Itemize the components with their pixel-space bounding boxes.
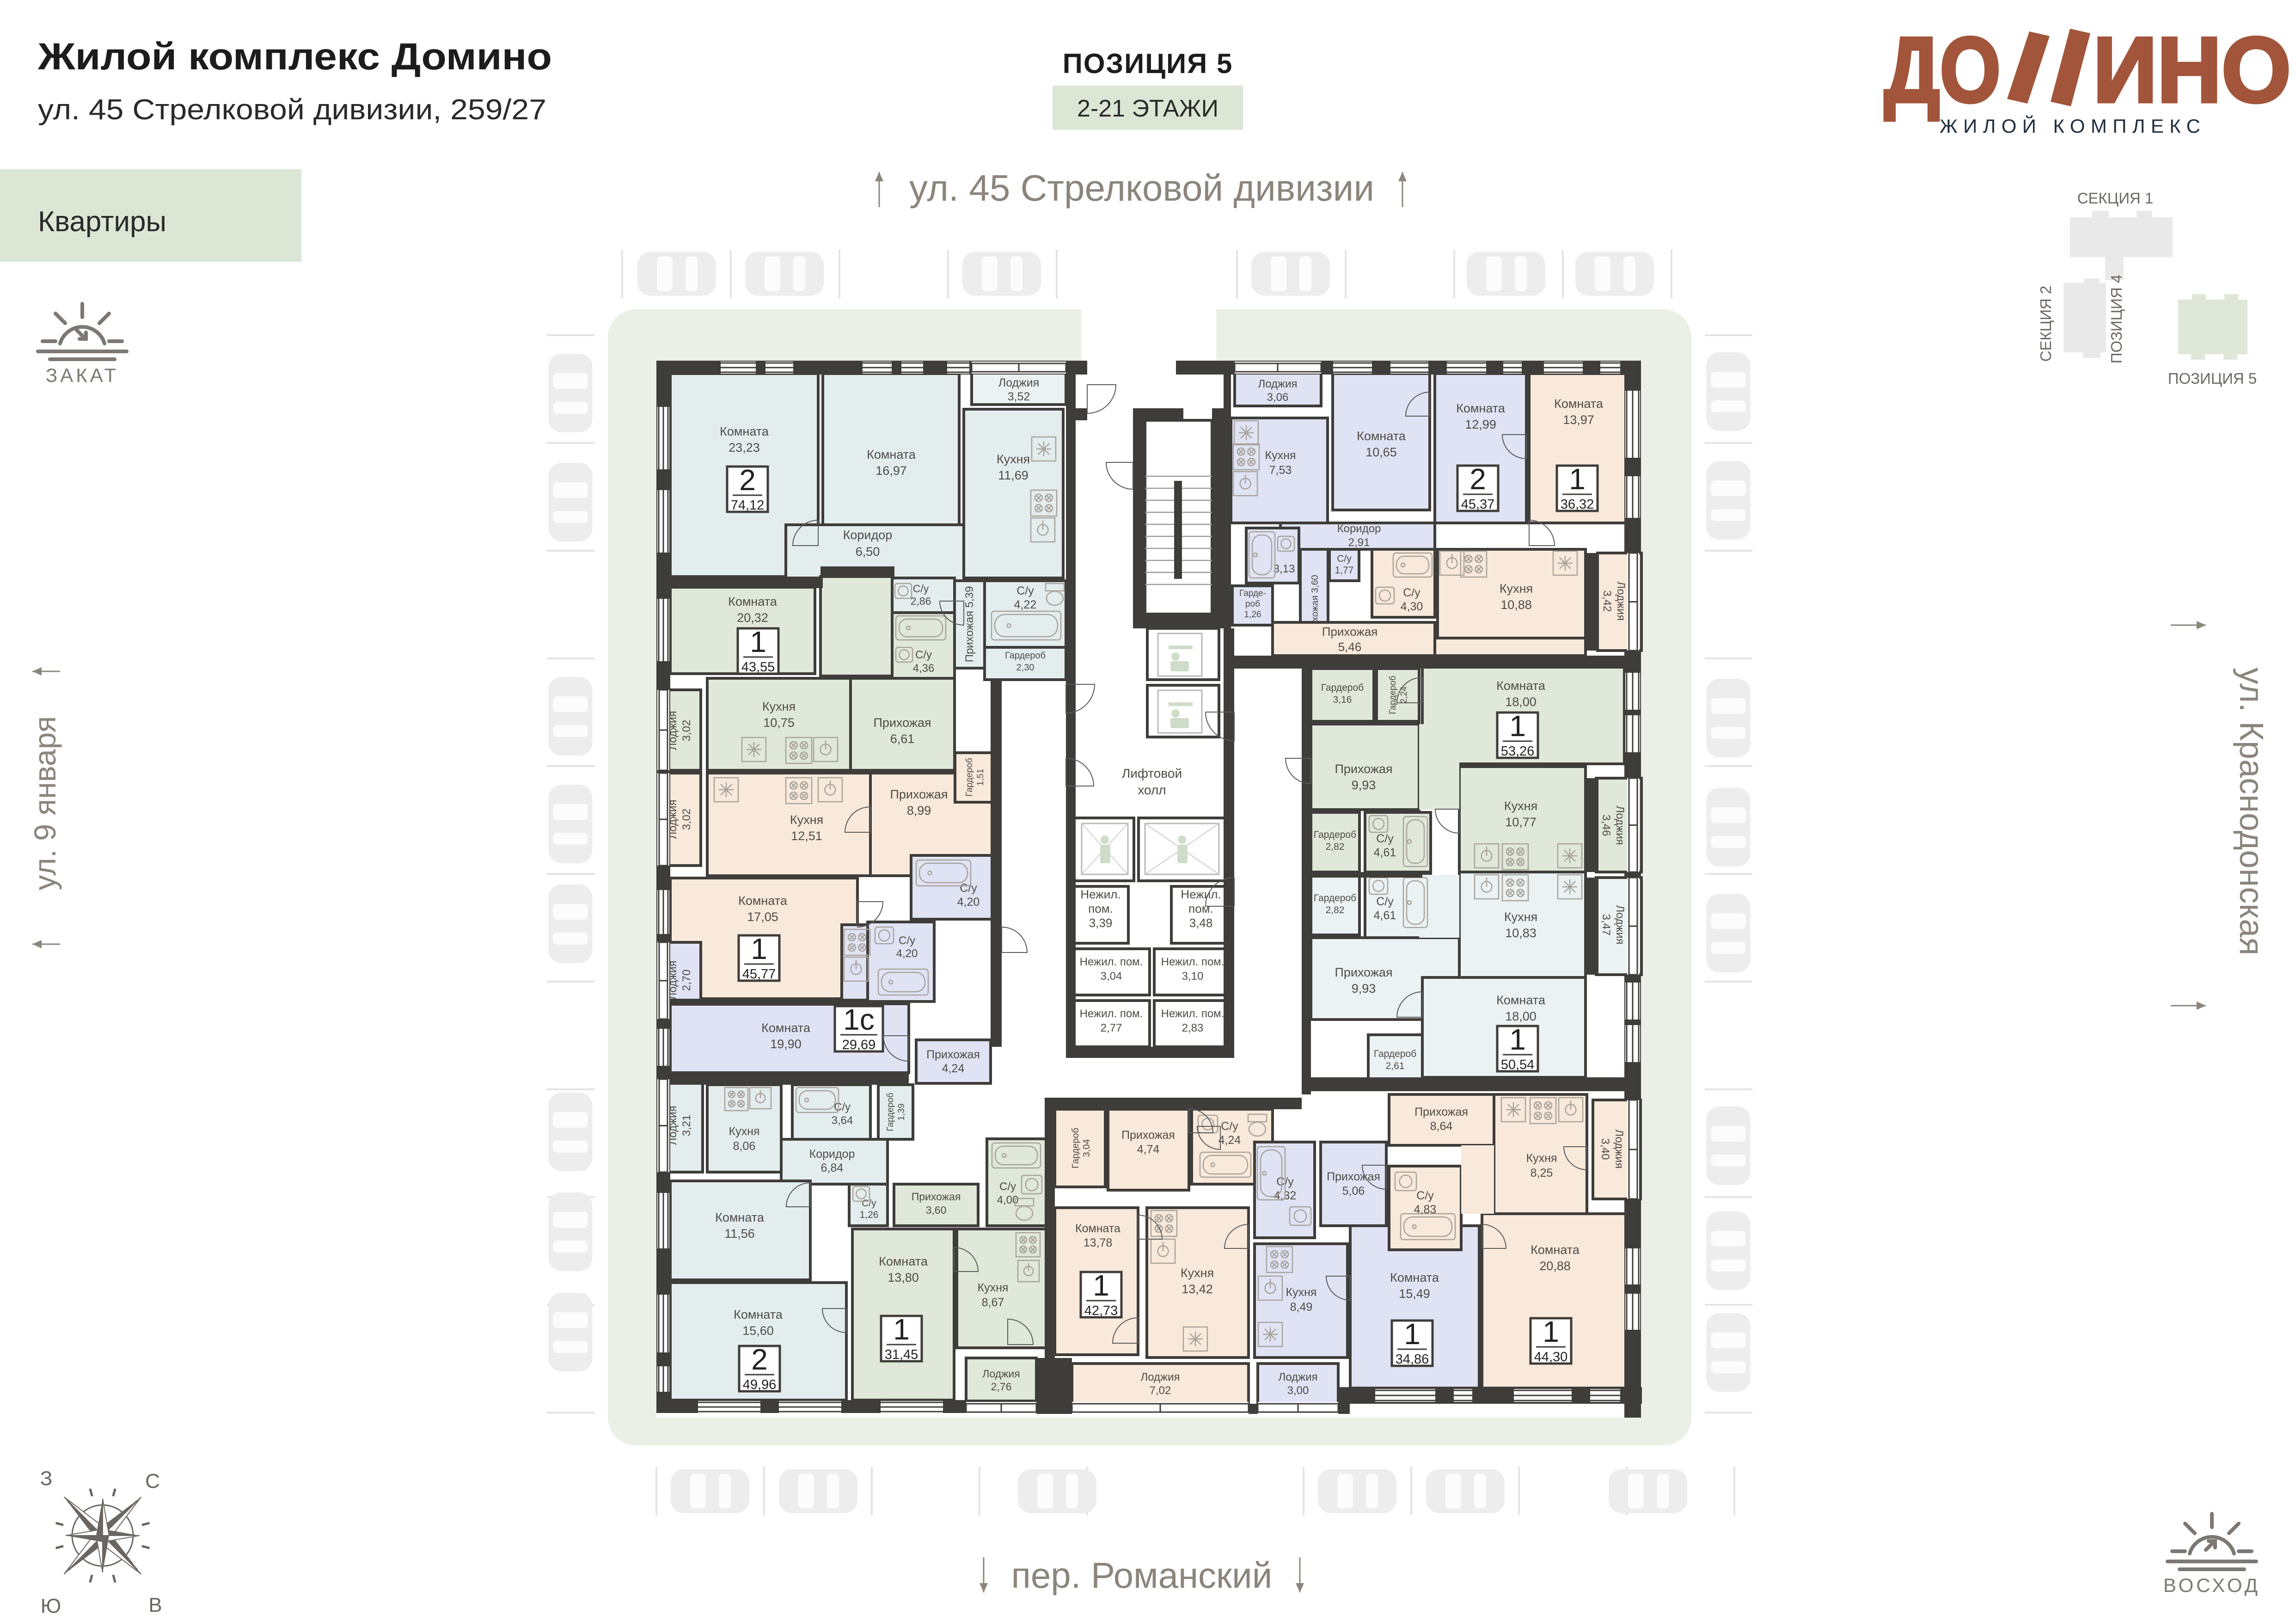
svg-text:1с: 1с bbox=[843, 1003, 875, 1036]
svg-text:В: В bbox=[148, 1594, 162, 1616]
svg-text:ул. Краснодонская: ул. Краснодонская bbox=[2233, 668, 2270, 956]
svg-text:ПОЗИЦИЯ 5: ПОЗИЦИЯ 5 bbox=[1063, 48, 1233, 79]
svg-text:З: З bbox=[40, 1467, 53, 1490]
svg-text:1: 1 bbox=[1543, 1315, 1559, 1348]
svg-text:49,96: 49,96 bbox=[743, 1377, 777, 1392]
svg-text:34,86: 34,86 bbox=[1396, 1352, 1429, 1367]
svg-text:ЖИЛОЙ КОМПЛЕКС: ЖИЛОЙ КОМПЛЕКС bbox=[1940, 115, 2204, 137]
svg-text:74,12: 74,12 bbox=[731, 498, 765, 513]
svg-text:Квартиры: Квартиры bbox=[38, 206, 166, 238]
svg-text:Прихожая 5,39: Прихожая 5,39 bbox=[963, 586, 976, 663]
svg-text:50,54: 50,54 bbox=[1501, 1057, 1535, 1072]
svg-text:СЕКЦИЯ 2: СЕКЦИЯ 2 bbox=[2037, 286, 2054, 362]
svg-text:ул. 45 Стрелковой дивизии: ул. 45 Стрелковой дивизии bbox=[909, 167, 1374, 209]
svg-text:ПОЗИЦИЯ 5: ПОЗИЦИЯ 5 bbox=[2168, 370, 2257, 387]
svg-text:2-21 ЭТАЖИ: 2-21 ЭТАЖИ bbox=[1077, 95, 1218, 122]
svg-text:2: 2 bbox=[1469, 462, 1486, 496]
svg-text:29,69: 29,69 bbox=[842, 1038, 876, 1052]
svg-text:1: 1 bbox=[1569, 462, 1586, 496]
svg-text:44,30: 44,30 bbox=[1534, 1350, 1568, 1364]
svg-text:ЗАКАТ: ЗАКАТ bbox=[46, 364, 119, 386]
svg-text:ВОСХОД: ВОСХОД bbox=[2163, 1574, 2260, 1596]
svg-text:43,55: 43,55 bbox=[741, 660, 775, 675]
svg-text:С/у2,86: С/у2,86 bbox=[911, 583, 931, 607]
svg-text:Ю: Ю bbox=[41, 1595, 61, 1617]
svg-text:ДО: ДО bbox=[1884, 18, 2001, 122]
svg-text:53,26: 53,26 bbox=[1501, 744, 1535, 759]
svg-text:ул. 45 Стрелковой дивизии, 259: ул. 45 Стрелковой дивизии, 259/27 bbox=[38, 94, 546, 126]
svg-text:ИНО: ИНО bbox=[2093, 18, 2291, 122]
svg-text:1: 1 bbox=[750, 625, 766, 658]
svg-text:С: С bbox=[145, 1470, 160, 1493]
svg-text:1: 1 bbox=[1509, 709, 1526, 743]
svg-text:45,37: 45,37 bbox=[1461, 497, 1495, 512]
svg-text:31,45: 31,45 bbox=[885, 1347, 918, 1362]
svg-text:ул. 9 января: ул. 9 января bbox=[28, 716, 62, 891]
svg-text:1: 1 bbox=[1509, 1023, 1526, 1056]
svg-text:1: 1 bbox=[751, 932, 767, 965]
svg-text:1: 1 bbox=[893, 1313, 910, 1346]
svg-text:1: 1 bbox=[1093, 1269, 1109, 1302]
svg-text:2: 2 bbox=[739, 463, 756, 497]
svg-text:СЕКЦИЯ 1: СЕКЦИЯ 1 bbox=[2077, 190, 2154, 207]
svg-text:2: 2 bbox=[751, 1343, 768, 1376]
svg-text:3,13: 3,13 bbox=[1274, 563, 1295, 575]
svg-text:42,73: 42,73 bbox=[1084, 1303, 1118, 1318]
svg-text:Жилой комплекс Домино: Жилой комплекс Домино bbox=[37, 36, 552, 78]
svg-text:36,32: 36,32 bbox=[1561, 497, 1594, 512]
svg-text:С/у4,20: С/у4,20 bbox=[896, 934, 918, 960]
svg-text:1: 1 bbox=[1404, 1317, 1420, 1351]
svg-text:45,77: 45,77 bbox=[742, 967, 776, 982]
svg-text:ПОЗИЦИЯ 4: ПОЗИЦИЯ 4 bbox=[2108, 275, 2125, 364]
svg-text:пер. Романский: пер. Романский bbox=[1011, 1555, 1273, 1596]
